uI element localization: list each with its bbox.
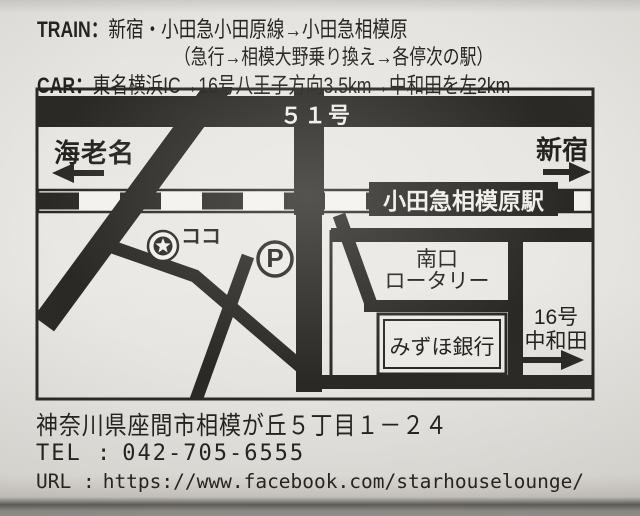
train-label: TRAIN： [37,12,108,44]
mizuho-bank-label: みずほ銀行 [380,331,504,361]
parking-label: P [262,243,288,274]
railway-segment [558,191,574,211]
road-vertical-center [296,212,322,392]
route51-label: ５１号 [276,98,356,130]
train-note-text: （急行→相模大野乗り換え→各停次の駅） [174,41,493,71]
url-label: URL : [36,470,95,493]
shinjuku-label: 新宿 [536,130,588,167]
map-roads [37,83,593,400]
address-text: 神奈川県座間市相模が丘５丁目１－２４ [36,406,448,442]
url-value: https://www.facebook.com/starhouselounge… [103,470,584,493]
here-star-marker-icon [148,231,178,261]
car-label: CAR： [37,68,93,100]
tel-value: 042-705-6555 [122,441,305,466]
rotary-label-line2: ロータリー [364,265,510,295]
route16-label-line2: 中和田 [519,325,593,355]
train-route-text: 新宿・小田急小田原線→小田急相模原 [108,12,407,44]
url-row: URL :https://www.facebook.com/starhousel… [36,470,584,493]
here-label: ココ [181,220,221,249]
access-card-photo: TRAIN：新宿・小田急小田原線→小田急相模原 （急行→相模大野乗り換え→各停次… [0,0,640,516]
car-directions-row: CAR：東名横浜IC→16号八王子方向3.5km→中和田を左2km [37,68,510,100]
train-directions-row: TRAIN：新宿・小田急小田原線→小田急相模原 [37,12,408,44]
road-station-front [331,228,593,242]
car-route-text: 東名横浜IC→16号八王子方向3.5km→中和田を左2km [93,68,511,100]
tel-label: TEL : [36,441,112,466]
road-mid-horizontal [364,300,511,312]
road-bottom-horizontal [296,375,593,389]
station-name-badge: 小田急相模原駅 [369,182,558,216]
ebina-label: 海老名 [54,133,135,170]
tel-row: TEL :042-705-6555 [36,441,305,466]
